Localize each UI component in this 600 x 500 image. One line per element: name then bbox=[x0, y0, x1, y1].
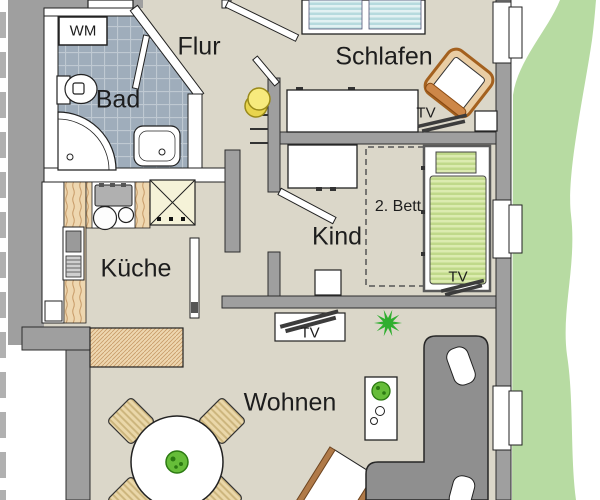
page-edge-dashes bbox=[0, 12, 6, 500]
installation-shaft bbox=[150, 180, 195, 225]
coffee-table bbox=[365, 377, 397, 440]
wall-schlafen-kind bbox=[270, 132, 496, 144]
garden-lawn bbox=[512, 0, 596, 500]
window-schlafen bbox=[493, 2, 522, 63]
toilet bbox=[57, 75, 97, 105]
exterior-wall-bottom-left bbox=[22, 327, 90, 500]
wall-kind-wohnen bbox=[222, 296, 496, 308]
kitchen-sink-unit bbox=[63, 227, 84, 280]
sideboard bbox=[90, 328, 183, 367]
dining-table bbox=[131, 416, 223, 500]
child-bed bbox=[421, 146, 490, 291]
wardrobe bbox=[287, 87, 418, 132]
wall-flur-lower bbox=[268, 252, 280, 296]
floor-plan-drawing bbox=[0, 0, 600, 500]
desk bbox=[288, 145, 357, 191]
floor-plan: WM Bad Flur Schlafen TV Kind 2. Bett TV … bbox=[0, 0, 600, 500]
kitchen-door-leaf bbox=[190, 238, 199, 318]
window-kind bbox=[493, 200, 522, 258]
wall-kitchen-right bbox=[225, 150, 240, 252]
washing-machine bbox=[59, 17, 107, 45]
double-bed bbox=[302, 0, 425, 34]
stove bbox=[94, 183, 134, 230]
bathroom-sink bbox=[134, 126, 180, 166]
window-wohnen bbox=[493, 386, 522, 450]
nightstand bbox=[475, 111, 497, 131]
kind-stool bbox=[315, 270, 341, 295]
